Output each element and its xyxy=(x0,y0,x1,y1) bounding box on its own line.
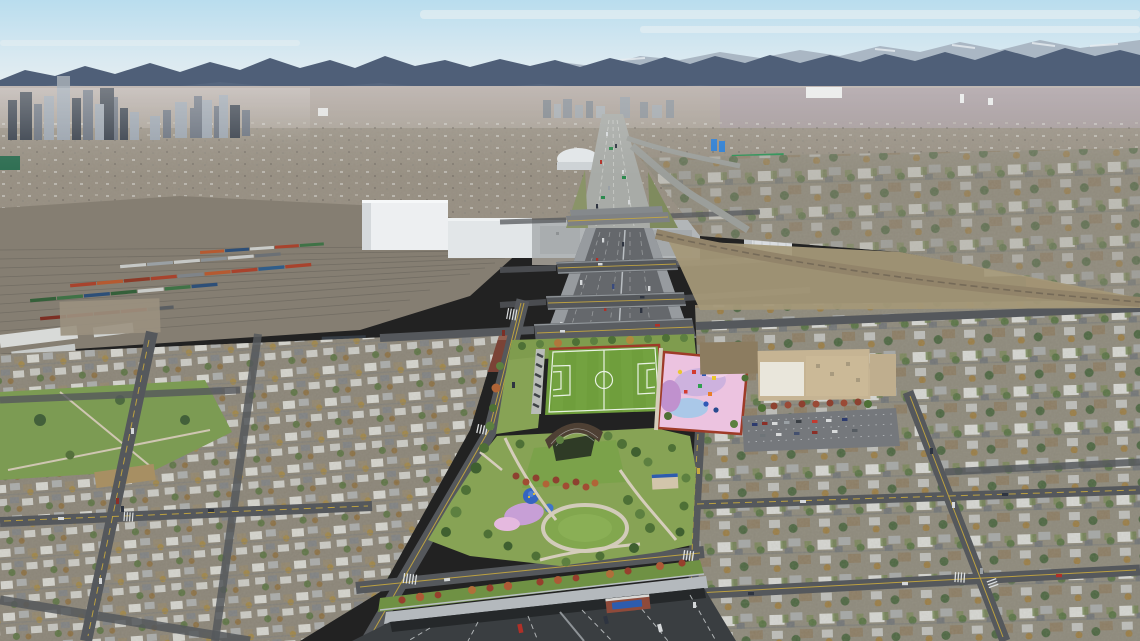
cloud-streak xyxy=(640,26,1140,33)
vacant-lot xyxy=(59,298,160,335)
school-east-wing xyxy=(870,354,896,396)
atmospheric-haze xyxy=(0,86,1140,176)
white-warehouse-b xyxy=(448,218,532,258)
plaza-building xyxy=(652,473,679,489)
circular-lawn xyxy=(543,505,627,551)
aerial-rendering xyxy=(0,0,1140,641)
school-white-roof xyxy=(760,362,804,396)
cloud-streak xyxy=(0,40,300,46)
soccer-field xyxy=(531,345,663,415)
cloud-streak xyxy=(420,10,1140,19)
school-north-wing xyxy=(700,341,759,374)
white-warehouse-a xyxy=(362,200,448,250)
